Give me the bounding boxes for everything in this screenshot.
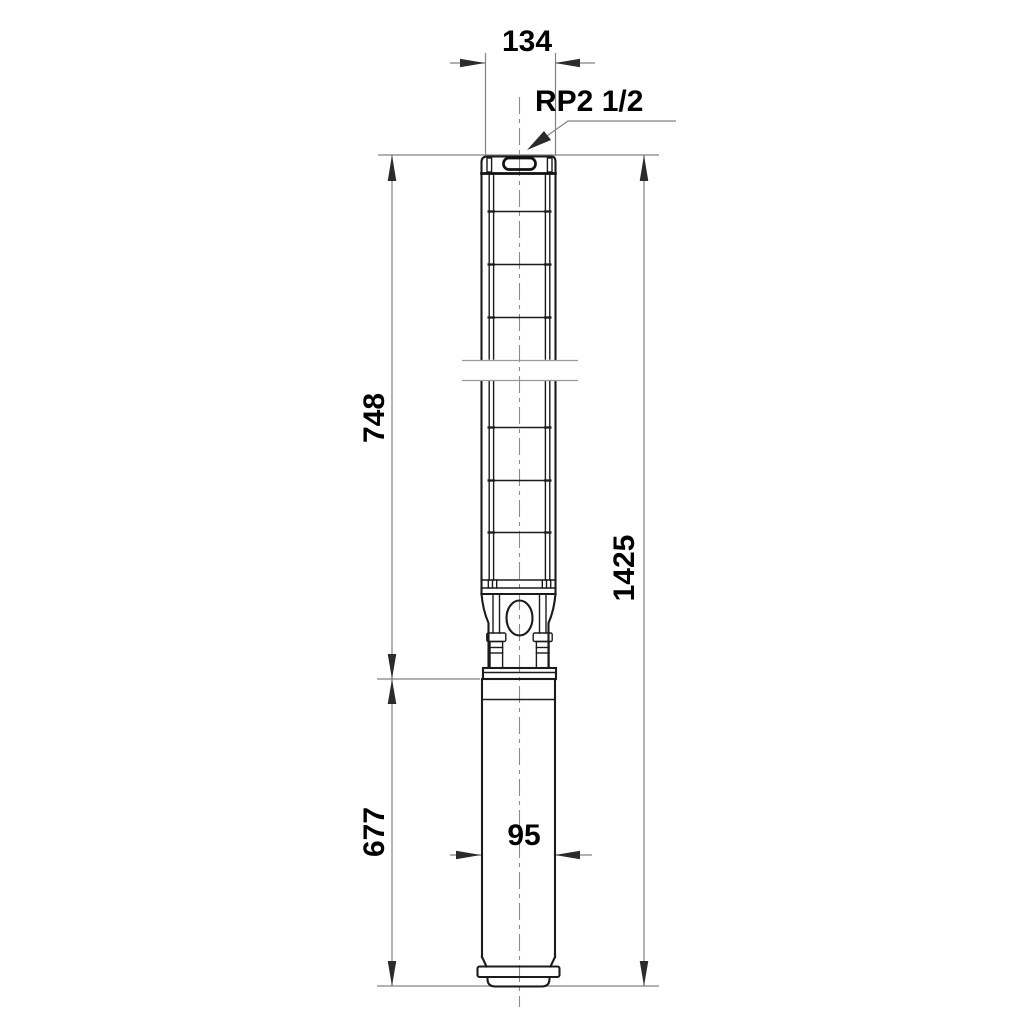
motor-bottom-ring <box>478 967 560 978</box>
sleeve-bottom-band <box>482 580 556 588</box>
stay-bolt-left <box>487 594 506 668</box>
dim-label-length-total: 1425 <box>608 535 641 602</box>
interconnector-taper-left <box>482 594 489 668</box>
pump-sleeve <box>482 173 556 594</box>
motor-end-cap <box>488 977 550 987</box>
arrow-width-top-right <box>555 59 580 68</box>
pump-head-slot-right <box>547 158 552 172</box>
dim-label-length-upper: 748 <box>358 393 391 443</box>
suction-interconnector <box>482 594 557 679</box>
dimension-labels: 134 RP2 1/2 748 677 1425 95 <box>358 25 643 857</box>
arrow-left-bottom <box>388 961 397 986</box>
arrow-width-top-left <box>460 59 485 68</box>
arrow-width-bottom-right <box>555 851 580 860</box>
pump-head <box>482 157 556 174</box>
arrow-width-bottom-left <box>456 851 481 860</box>
leader-line-connection <box>530 121 676 148</box>
arrow-right-bottom <box>640 961 649 986</box>
connection-label: RP2 1/2 <box>535 85 643 118</box>
arrow-left-joint-lower <box>388 679 397 704</box>
motor-chamfer-right <box>551 957 556 967</box>
pump-dimensional-drawing: 134 RP2 1/2 748 677 1425 95 <box>0 0 1024 1024</box>
arrow-connection-leader <box>527 131 551 150</box>
motor-chamfer-left <box>482 957 487 967</box>
dim-label-length-lower: 677 <box>358 807 391 857</box>
pump-head-slot-left <box>487 158 492 172</box>
arrow-left-top <box>388 155 397 181</box>
arrow-right-top <box>640 155 649 181</box>
dimensional-drawing-canvas: 134 RP2 1/2 748 677 1425 95 <box>0 0 1024 1024</box>
dim-label-width-top: 134 <box>502 25 552 58</box>
arrow-left-joint-upper <box>388 654 397 679</box>
dim-label-width-bottom: 95 <box>507 819 540 852</box>
